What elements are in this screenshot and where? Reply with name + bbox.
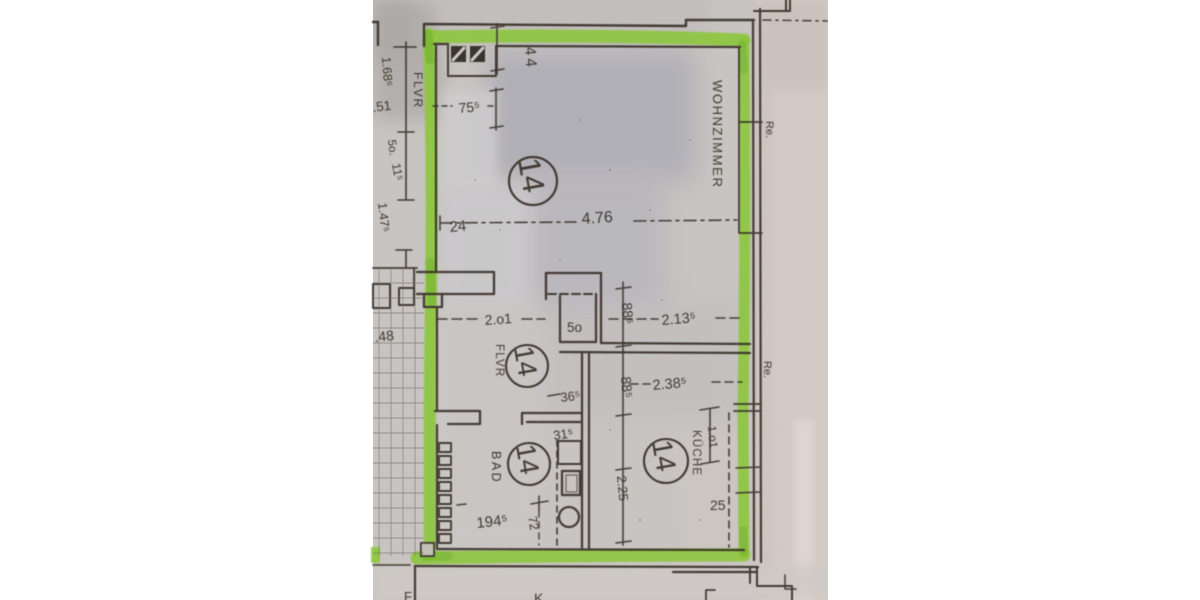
svg-text:72: 72	[525, 515, 541, 531]
svg-text:88⁶: 88⁶	[619, 302, 637, 325]
svg-text:25: 25	[710, 497, 726, 513]
svg-text:2.o1: 2.o1	[484, 310, 513, 328]
svg-text:1.o1: 1.o1	[705, 425, 719, 448]
svg-text:2.13⁵: 2.13⁵	[661, 310, 696, 329]
svg-text:4.76: 4.76	[581, 209, 613, 228]
svg-text:14: 14	[646, 438, 682, 474]
svg-text:KÜCHE: KÜCHE	[690, 430, 702, 476]
svg-text:5o.: 5o.	[385, 139, 399, 156]
svg-text:1.68⁶: 1.68⁶	[379, 56, 395, 86]
svg-text:2.38⁵: 2.38⁵	[652, 375, 687, 394]
svg-text:88⁵: 88⁵	[618, 376, 636, 399]
svg-text:2.25: 2.25	[614, 475, 631, 502]
svg-text:194⁵: 194⁵	[476, 512, 509, 532]
svg-text:.48: .48	[374, 327, 395, 345]
svg-text:.51: .51	[372, 98, 392, 115]
svg-text:WOHNZIMMER: WOHNZIMMER	[710, 80, 725, 188]
svg-text:5o: 5o	[567, 320, 582, 335]
svg-text:31⁵: 31⁵	[552, 425, 574, 443]
svg-text:44: 44	[521, 46, 540, 70]
svg-text:Re.: Re.	[763, 121, 775, 138]
svg-text:FLVR: FLVR	[493, 344, 505, 377]
svg-text:36⁵: 36⁵	[560, 388, 582, 405]
svg-text:75⁵: 75⁵	[458, 98, 481, 116]
svg-text:14: 14	[510, 442, 545, 477]
svg-text:FLVR: FLVR	[411, 72, 425, 109]
svg-text:14: 14	[508, 344, 543, 379]
svg-text:11⁵: 11⁵	[389, 162, 406, 182]
svg-text:K: K	[534, 590, 544, 600]
svg-text:14: 14	[511, 155, 551, 195]
svg-text:F: F	[404, 589, 412, 600]
svg-text:BAD: BAD	[489, 451, 503, 484]
svg-text:24: 24	[449, 218, 467, 236]
svg-text:Re.: Re.	[761, 361, 773, 378]
